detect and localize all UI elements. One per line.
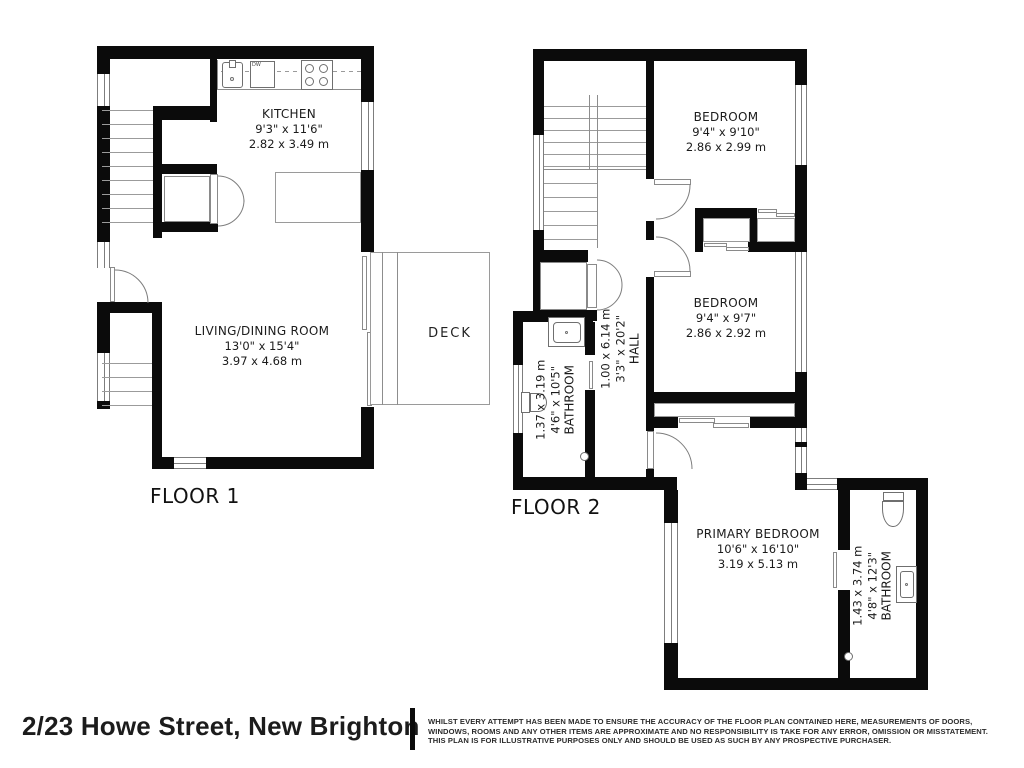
wall xyxy=(646,392,807,403)
sliding-door xyxy=(362,256,367,330)
room-name: HALL xyxy=(627,279,642,419)
wall xyxy=(97,46,374,59)
room-dim-metric: 2.86 x 2.99 m xyxy=(666,140,786,155)
room-dim-imperial: 4'6" x 10'5" xyxy=(548,330,563,470)
staircase xyxy=(544,170,597,248)
ensuite-label: 1.43 x 3.74 m 4'8" x 12'3" BATHROOM xyxy=(850,516,894,656)
disclaimer-line: WINDOWS, ROOMS AND ANY OTHER ITEMS ARE A… xyxy=(428,727,1008,737)
room-dim-imperial: 9'4" x 9'7" xyxy=(666,311,786,326)
wall xyxy=(838,490,850,550)
living-label: LIVING/DINING ROOM 13'0" x 15'4" 3.97 x … xyxy=(182,324,342,369)
address: 2/23 Howe Street, New Brighton xyxy=(22,711,420,742)
wall xyxy=(513,311,523,365)
disclaimer-line: THIS PLAN IS FOR ILLUSTRATIVE PURPOSES O… xyxy=(428,736,1008,746)
room-dim-imperial: 9'4" x 9'10" xyxy=(666,125,786,140)
room-dim-metric: 1.00 x 6.14 m xyxy=(598,279,613,419)
pocket-door xyxy=(589,361,593,389)
room-name: BEDROOM xyxy=(666,110,786,125)
entry-door-leaf xyxy=(110,267,115,302)
deck-line xyxy=(382,252,383,405)
room-name: BATHROOM xyxy=(879,516,894,656)
window xyxy=(795,447,807,473)
window xyxy=(174,457,206,469)
room-dim-metric: 3.19 x 5.13 m xyxy=(678,557,838,572)
wall xyxy=(103,302,160,313)
room-dim-metric: 2.82 x 3.49 m xyxy=(231,137,347,152)
wall xyxy=(646,221,654,240)
sliding-door xyxy=(713,423,749,428)
window xyxy=(807,478,837,490)
floor-plan: DW DECK KITCHEN 9'3" x 11'6" 2.82 x 3.49… xyxy=(0,0,1024,768)
wall xyxy=(795,478,807,490)
kitchen-island xyxy=(275,172,361,223)
stair-rail xyxy=(597,95,598,248)
deck-line xyxy=(397,252,398,405)
window xyxy=(97,242,110,268)
sliding-door xyxy=(679,418,715,423)
wall xyxy=(695,208,703,252)
disclaimer-line: WHILST EVERY ATTEMPT HAS BEEN MADE TO EN… xyxy=(428,717,1008,727)
stove-burner xyxy=(305,64,314,73)
door-leaf xyxy=(654,271,691,277)
wall xyxy=(646,49,654,179)
door-leaf xyxy=(647,431,654,469)
sink-tap xyxy=(229,60,236,68)
wall xyxy=(361,46,374,102)
sliding-door xyxy=(704,243,727,247)
wall xyxy=(838,590,850,678)
window xyxy=(533,135,544,230)
wall xyxy=(533,49,807,61)
wall xyxy=(646,277,654,431)
wall xyxy=(206,457,374,469)
room-name: BATHROOM xyxy=(562,330,577,470)
room-name: BEDROOM xyxy=(666,296,786,311)
stair-rail xyxy=(589,95,590,170)
sink-drain xyxy=(230,77,234,81)
room-name: KITCHEN xyxy=(231,107,347,122)
counter-edge xyxy=(217,60,218,89)
disclaimer: WHILST EVERY ATTEMPT HAS BEEN MADE TO EN… xyxy=(428,717,1008,746)
wall xyxy=(748,242,807,252)
bedroom2-label: BEDROOM 9'4" x 9'7" 2.86 x 2.92 m xyxy=(666,296,786,341)
stove-burner xyxy=(305,77,314,86)
deck-label: DECK xyxy=(414,326,486,341)
toilet-tank xyxy=(883,492,904,501)
closet-opening xyxy=(210,174,218,224)
wall xyxy=(97,46,110,74)
wall xyxy=(361,170,374,252)
closet xyxy=(540,262,587,310)
wall xyxy=(695,208,757,218)
staircase xyxy=(544,95,646,170)
room-dim-imperial: 13'0" x 15'4" xyxy=(182,339,342,354)
window xyxy=(361,102,374,170)
wall xyxy=(916,478,928,690)
room-dim-imperial: 3'3" x 20'2" xyxy=(613,279,628,419)
counter-edge xyxy=(217,89,361,90)
primary-door-arc xyxy=(656,433,692,469)
entry-door-arc xyxy=(115,270,148,303)
wall xyxy=(664,678,928,690)
wall xyxy=(533,49,544,135)
wall xyxy=(153,222,218,232)
wall xyxy=(585,390,595,477)
closet xyxy=(654,403,795,417)
closet-opening xyxy=(587,264,597,308)
shower-icon xyxy=(580,452,589,461)
room-name: LIVING/DINING ROOM xyxy=(182,324,342,339)
pantry-door-arc xyxy=(218,176,244,202)
door-leaf xyxy=(654,179,691,185)
window xyxy=(795,252,807,372)
bathroom-label: 1.37 x 3.19 m 4'6" x 10'5" BATHROOM xyxy=(533,330,577,470)
wall xyxy=(153,106,217,120)
room-name: PRIMARY BEDROOM xyxy=(678,527,838,542)
wall xyxy=(795,165,807,252)
sink-drain xyxy=(905,583,908,586)
wall xyxy=(153,106,162,238)
floor2-label: FLOOR 2 xyxy=(511,495,601,519)
floor1-label: FLOOR 1 xyxy=(150,484,240,508)
bedroom1-label: BEDROOM 9'4" x 9'10" 2.86 x 2.99 m xyxy=(666,110,786,155)
window xyxy=(664,523,678,643)
footer-divider xyxy=(410,708,415,750)
dishwasher-label: DW xyxy=(252,62,261,68)
window xyxy=(97,74,110,106)
stove-burner xyxy=(319,77,328,86)
wall xyxy=(585,322,595,355)
wall xyxy=(646,469,654,490)
sliding-door xyxy=(726,247,749,251)
closet xyxy=(703,218,750,242)
bedroom2-door-arc xyxy=(656,237,690,271)
wall xyxy=(837,478,928,490)
bedroom1-door-arc xyxy=(656,185,690,219)
toilet-tank xyxy=(521,392,530,413)
wall xyxy=(664,490,678,523)
window xyxy=(795,85,807,165)
wall xyxy=(152,302,162,469)
wall xyxy=(750,417,807,428)
room-dim-imperial: 10'6" x 16'10" xyxy=(678,542,838,557)
room-dim-metric: 1.43 x 3.74 m xyxy=(850,516,865,656)
wall xyxy=(795,49,807,85)
kitchen-label: KITCHEN 9'3" x 11'6" 2.82 x 3.49 m xyxy=(231,107,347,152)
closet xyxy=(757,218,795,242)
room-dim-metric: 3.97 x 4.68 m xyxy=(182,354,342,369)
hall-label: 1.00 x 6.14 m 3'3" x 20'2" HALL xyxy=(598,279,642,419)
room-dim-metric: 2.86 x 2.92 m xyxy=(666,326,786,341)
wall xyxy=(162,164,217,174)
stair-landing-edge xyxy=(544,169,647,170)
sliding-door xyxy=(776,213,795,217)
primary-bedroom-label: PRIMARY BEDROOM 10'6" x 16'10" 3.19 x 5.… xyxy=(678,527,838,572)
closet xyxy=(164,176,210,222)
room-dim-imperial: 4'8" x 12'3" xyxy=(865,516,880,656)
wall xyxy=(646,417,678,428)
wall xyxy=(536,250,588,262)
staircase xyxy=(102,110,153,236)
stove-burner xyxy=(319,64,328,73)
sliding-door xyxy=(758,209,777,213)
pantry-door-arc xyxy=(218,200,244,226)
entry-steps xyxy=(102,350,152,406)
room-dim-metric: 1.37 x 3.19 m xyxy=(533,330,548,470)
room-dim-imperial: 9'3" x 11'6" xyxy=(231,122,347,137)
wall xyxy=(210,59,217,122)
